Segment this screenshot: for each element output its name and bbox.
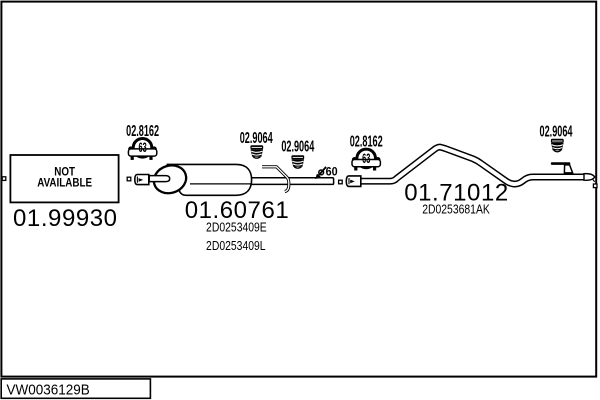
svg-text:02.9064: 02.9064 — [240, 128, 273, 146]
svg-text:63: 63 — [138, 141, 146, 156]
svg-text:63: 63 — [362, 152, 370, 167]
svg-text:02.8162: 02.8162 — [350, 132, 383, 150]
svg-text:02.9064: 02.9064 — [281, 137, 314, 155]
svg-text:2D0253409E: 2D0253409E — [206, 221, 267, 235]
svg-text:2D0253409L: 2D0253409L — [206, 239, 266, 253]
svg-text:60: 60 — [326, 166, 338, 179]
svg-text:02.8162: 02.8162 — [126, 121, 159, 139]
svg-text:2D0253681AK: 2D0253681AK — [422, 202, 490, 216]
svg-text:AVAILABLE: AVAILABLE — [37, 177, 92, 190]
svg-text:VW0036129B: VW0036129B — [7, 382, 90, 399]
svg-text:02.9064: 02.9064 — [540, 122, 573, 140]
svg-text:01.99930: 01.99930 — [13, 205, 118, 232]
